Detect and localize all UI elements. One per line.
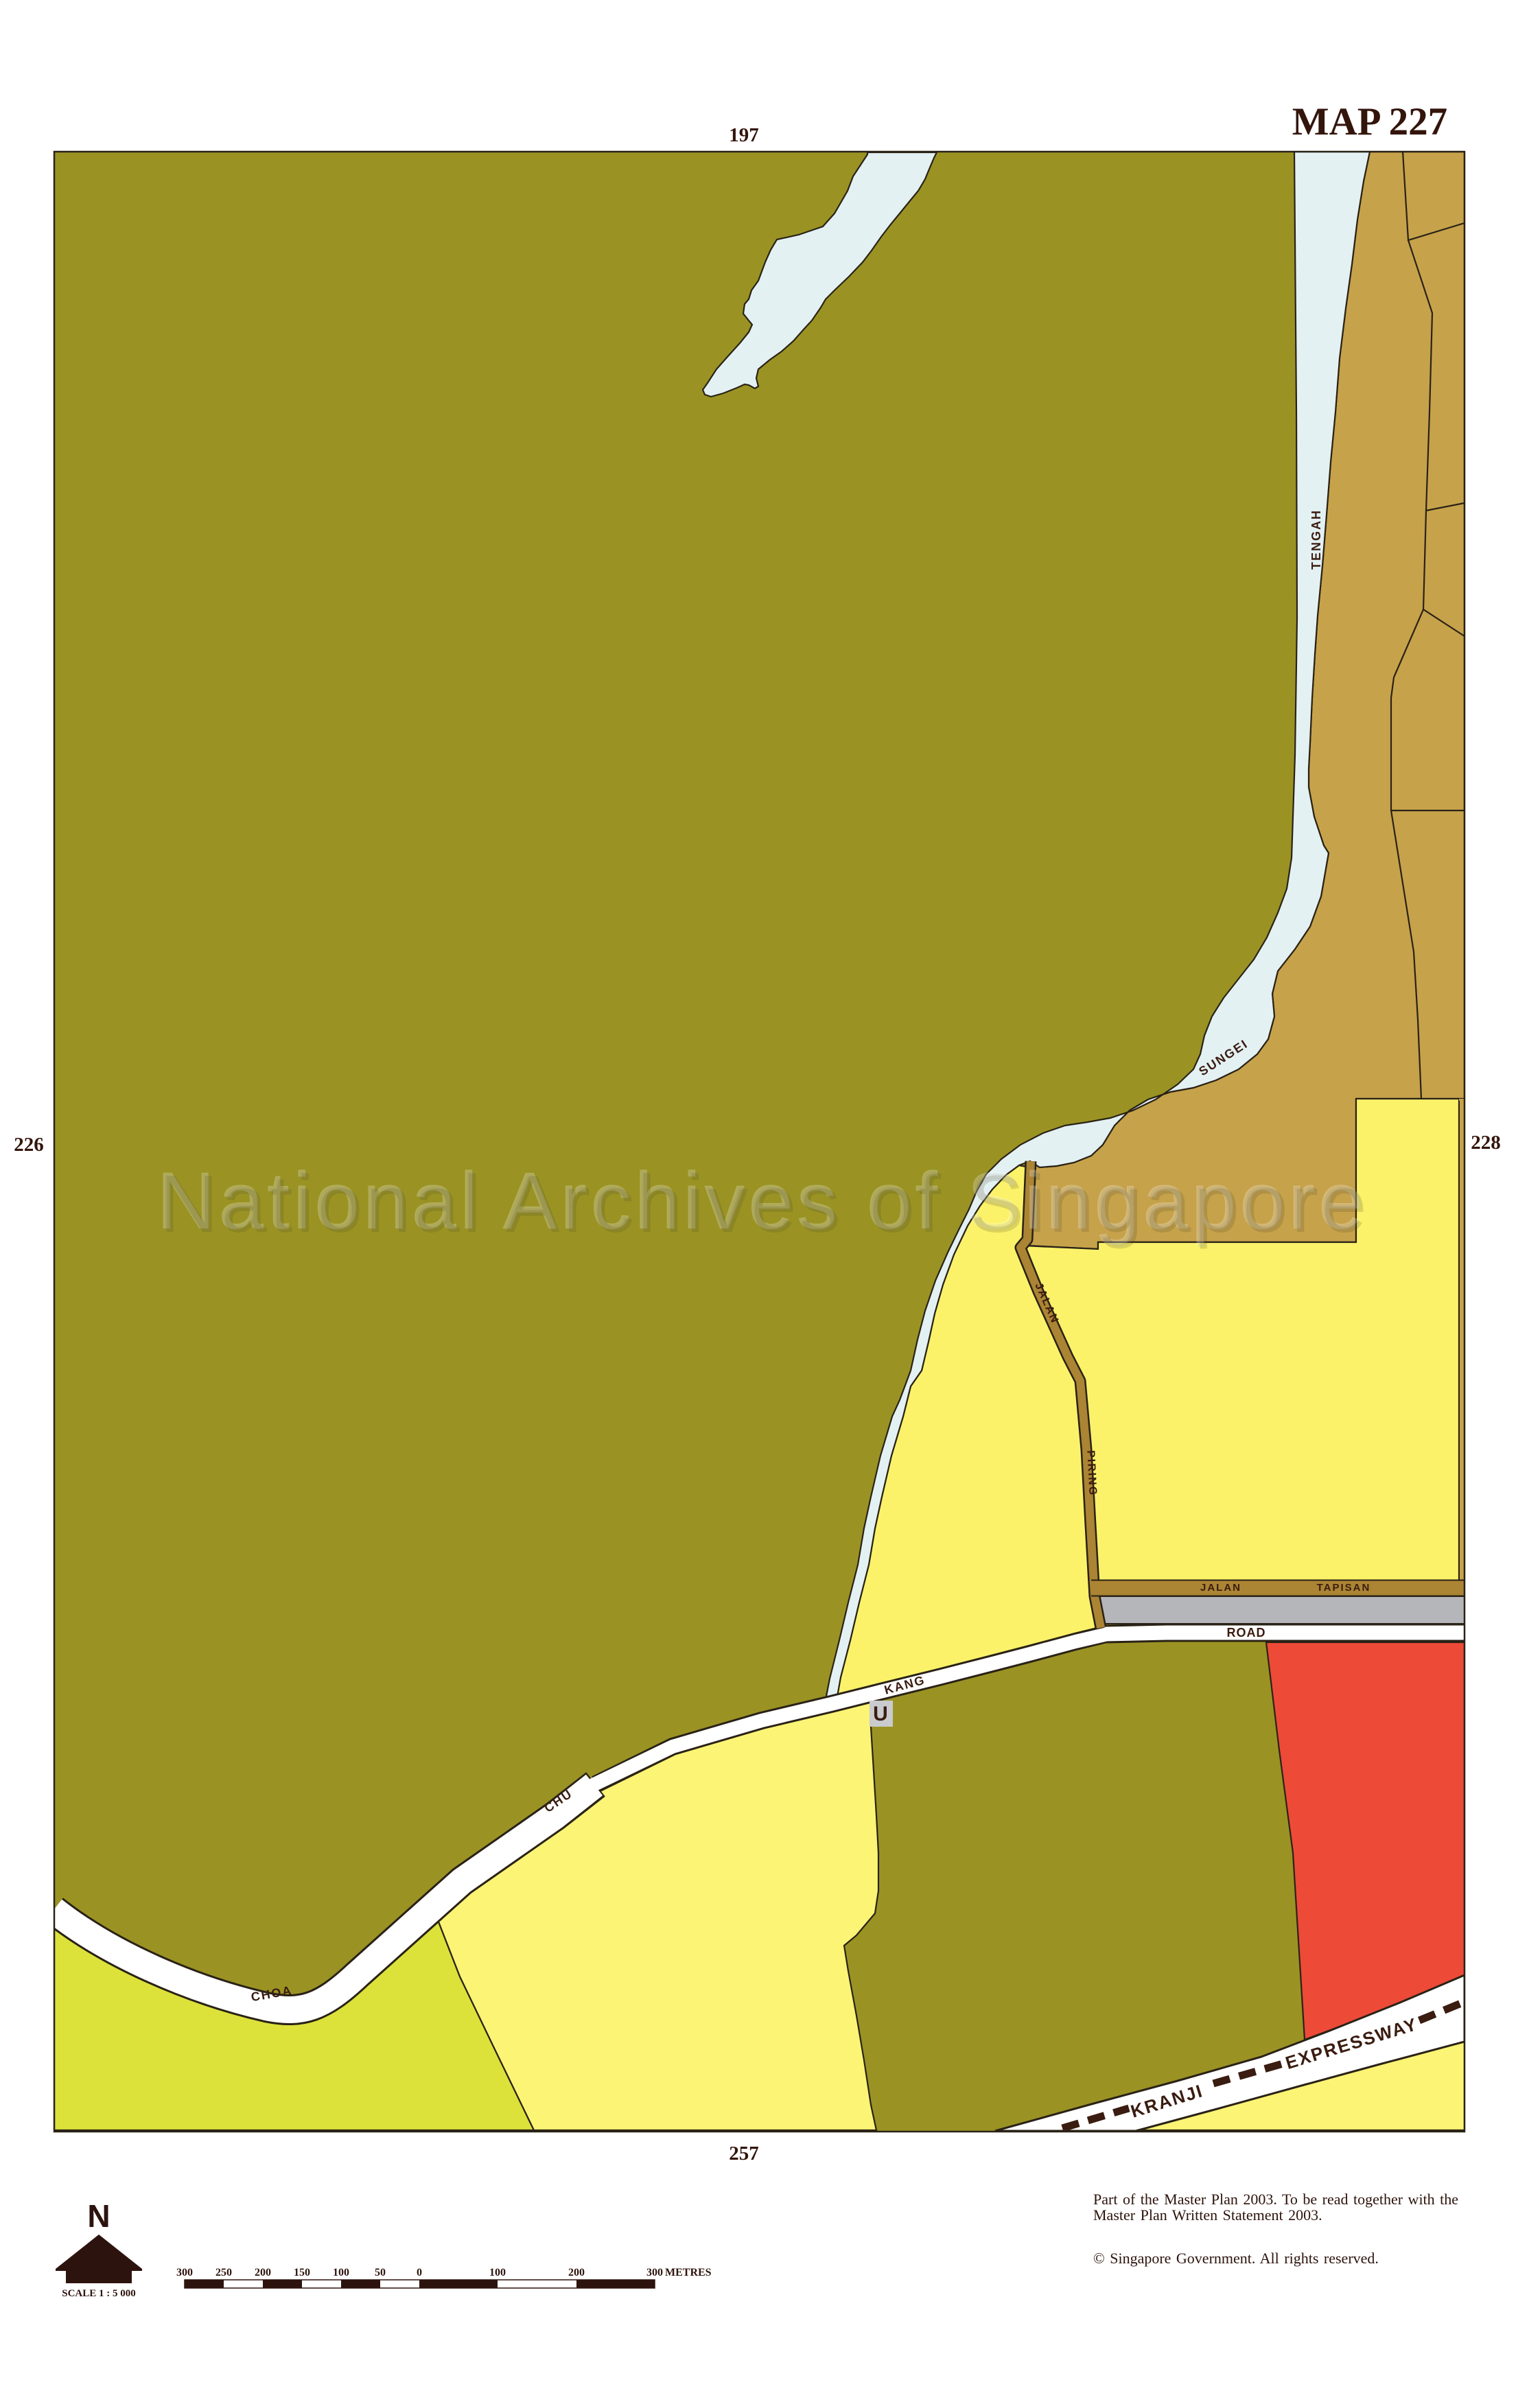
svg-text:250: 250 — [215, 2267, 232, 2278]
svg-text:300: 300 — [176, 2267, 193, 2278]
svg-text:TAPISAN: TAPISAN — [1317, 1582, 1371, 1594]
svg-text:TENGAH: TENGAH — [1309, 509, 1323, 570]
svg-text:0: 0 — [417, 2267, 422, 2278]
svg-text:226: 226 — [14, 1134, 44, 1156]
svg-text:SCALE 1 : 5 000: SCALE 1 : 5 000 — [62, 2288, 136, 2299]
svg-text:257: 257 — [729, 2143, 759, 2165]
svg-text:ROAD: ROAD — [1227, 1626, 1266, 1640]
svg-text:228: 228 — [1471, 1132, 1501, 1154]
svg-text:100: 100 — [489, 2267, 506, 2278]
svg-text:Part of the Master Plan 2003.: Part of the Master Plan 2003. To be read… — [1093, 2191, 1458, 2208]
svg-text:N: N — [87, 2198, 110, 2234]
svg-text:300: 300 — [646, 2267, 663, 2278]
svg-text:U: U — [873, 1703, 888, 1725]
svg-text:© Singapore Government. All: © Singapore Government. All rights reser… — [1093, 2250, 1379, 2267]
svg-text:Master Plan Written Statement: Master Plan Written Statement 2003. — [1093, 2206, 1322, 2224]
svg-text:197: 197 — [729, 124, 759, 146]
svg-text:50: 50 — [375, 2267, 386, 2278]
svg-text:PIRING: PIRING — [1084, 1450, 1098, 1497]
svg-text:National Archives of Singapore: National Archives of Singapore — [158, 1157, 1368, 1248]
svg-text:100: 100 — [333, 2267, 349, 2278]
svg-text:JALAN: JALAN — [1200, 1582, 1241, 1594]
svg-text:200: 200 — [255, 2267, 271, 2278]
svg-text:METRES: METRES — [665, 2267, 712, 2278]
svg-text:150: 150 — [294, 2267, 310, 2278]
svg-text:MAP 227: MAP 227 — [1292, 100, 1447, 143]
svg-text:200: 200 — [568, 2267, 585, 2278]
